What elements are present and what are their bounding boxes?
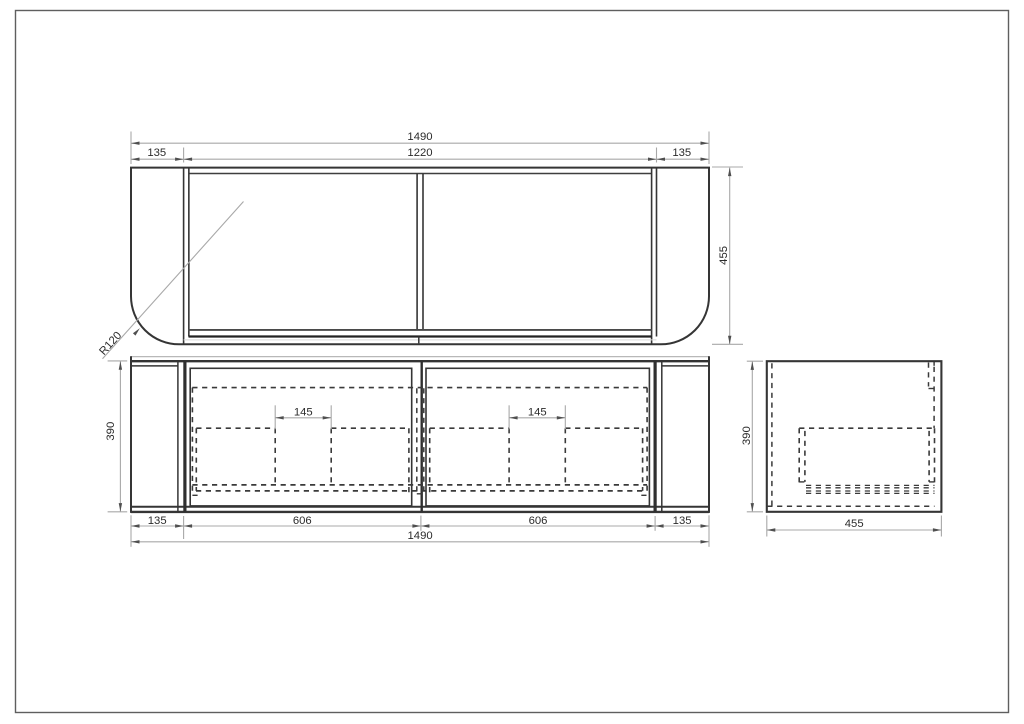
svg-text:135: 135 xyxy=(673,515,692,527)
svg-text:1220: 1220 xyxy=(407,147,432,159)
svg-text:455: 455 xyxy=(718,246,730,265)
svg-text:145: 145 xyxy=(294,406,313,418)
svg-text:135: 135 xyxy=(147,147,166,159)
svg-text:1490: 1490 xyxy=(407,131,432,143)
svg-text:145: 145 xyxy=(528,406,547,418)
svg-text:390: 390 xyxy=(741,426,753,445)
svg-text:606: 606 xyxy=(293,515,312,527)
svg-text:R120: R120 xyxy=(97,330,124,358)
svg-text:390: 390 xyxy=(105,422,117,441)
svg-text:135: 135 xyxy=(672,147,691,159)
svg-text:606: 606 xyxy=(529,515,548,527)
svg-text:455: 455 xyxy=(845,518,864,530)
svg-text:135: 135 xyxy=(148,515,167,527)
svg-text:1490: 1490 xyxy=(408,530,433,542)
